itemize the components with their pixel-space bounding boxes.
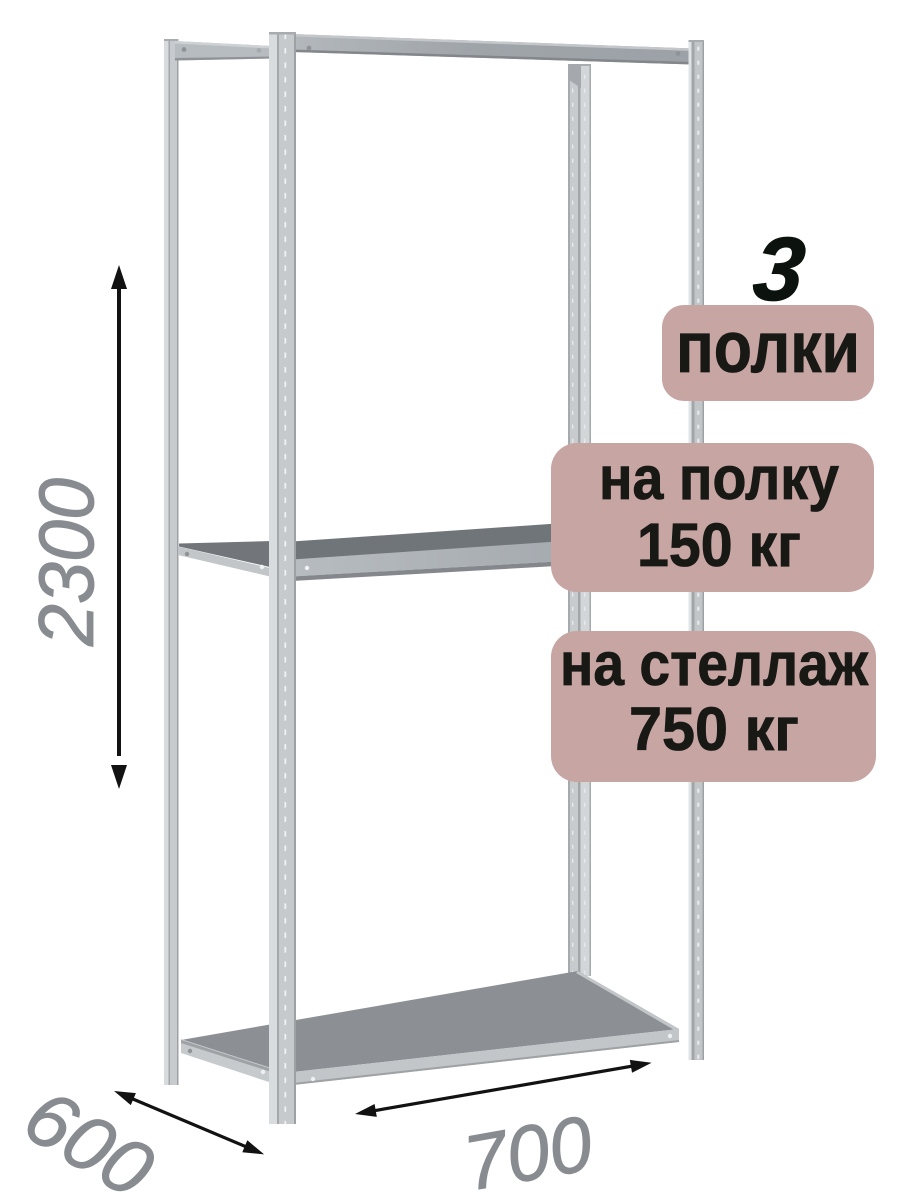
svg-text:на полку: на полку (599, 444, 839, 512)
svg-text:на стеллаж: на стеллаж (560, 630, 869, 698)
svg-text:150 кг: 150 кг (637, 511, 801, 579)
svg-text:700: 700 (457, 1099, 598, 1200)
svg-text:750 кг: 750 кг (629, 695, 799, 763)
svg-text:полки: полки (676, 308, 860, 388)
svg-text:2300: 2300 (22, 478, 110, 647)
svg-text:3: 3 (749, 219, 810, 320)
svg-text:600: 600 (10, 1071, 168, 1200)
